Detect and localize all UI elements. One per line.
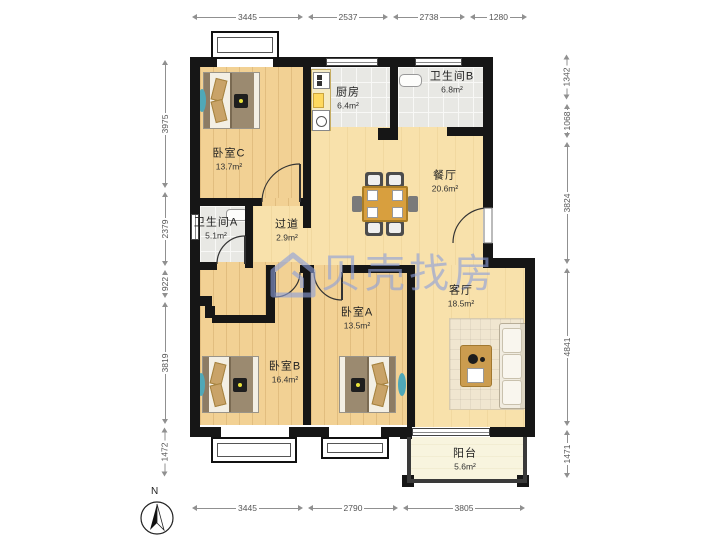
cup-icon (480, 357, 485, 362)
room-label-bedroom-a: 卧室A13.5m² (341, 304, 373, 331)
room-label-dining: 餐厅20.6m² (432, 167, 458, 194)
dimension-right-4: 4841 (562, 268, 572, 426)
bed-tray (234, 94, 248, 108)
bed-bedroom-b (202, 356, 259, 413)
dimension-top-2: 2537 (308, 12, 388, 22)
wall-bathroom-a-bottom (190, 262, 217, 270)
room-label-bedroom-b: 卧室B16.4m² (269, 358, 301, 385)
dining-chair (365, 220, 383, 236)
window-kitchen (326, 58, 378, 66)
floorplan-canvas: 贝壳找房 卧室C13.7m² 厨房6.4m² 卫生间B6.8m² 餐厅20.6m… (0, 0, 720, 540)
dimension-left-1: 3975 (160, 60, 170, 188)
balcony-rail-bottom (407, 479, 527, 483)
wall-right-lower (525, 258, 535, 437)
sofa (499, 323, 527, 409)
coffee-table (460, 345, 492, 387)
bed-tray (351, 378, 365, 392)
dimension-left-3: 922 (160, 270, 170, 298)
room-label-bathroom-a: 卫生间A5.1m² (194, 214, 238, 241)
bed-pillow (372, 383, 389, 407)
wall-bathroom-b-bottom (447, 127, 493, 136)
bathtub-bathroom-b (399, 74, 422, 87)
kettle-icon (468, 354, 478, 364)
dining-table (362, 186, 408, 222)
window-living-balcony (412, 428, 490, 436)
wall-kitchen-bathroom-b (390, 57, 398, 128)
bed-headboard (389, 357, 395, 412)
dimension-top-4: 1280 (470, 12, 527, 22)
balcony-rail-right (523, 437, 527, 483)
dimension-top-3: 2738 (393, 12, 465, 22)
dimension-right-5: 1471 (562, 430, 572, 478)
stove-icon (313, 72, 330, 89)
dining-bench (408, 196, 418, 212)
room-label-kitchen: 厨房6.4m² (336, 84, 360, 111)
dimension-bottom-3: 3805 (403, 503, 525, 513)
wall-left (190, 57, 200, 437)
watermark-logo-icon (268, 250, 318, 300)
wall-kitchen-stub (378, 128, 398, 140)
bed-tray (233, 378, 247, 392)
wall-bedroom-c-bottom (300, 198, 311, 206)
tray-icon (467, 368, 484, 383)
room-label-living: 客厅18.5m² (448, 282, 474, 309)
room-label-bathroom-b: 卫生间B6.8m² (430, 68, 474, 95)
bay-window-bedroom-a (321, 437, 389, 459)
compass-icon (141, 502, 173, 534)
balcony-rail-left (407, 437, 411, 483)
bed-bedroom-a (339, 356, 396, 413)
room-label-corridor: 过道2.9m² (275, 216, 299, 243)
room-label-bedroom-c: 卧室C13.7m² (213, 145, 246, 172)
room-label-balcony: 阳台5.6m² (453, 445, 477, 472)
bay-window-bedroom-b (211, 437, 297, 463)
bedside-rug-bedroom-a (398, 373, 406, 396)
dimension-left-5: 1472 (160, 428, 170, 477)
counter-item-icon (313, 93, 324, 108)
bed-pillow (210, 383, 227, 407)
kitchen-counter (311, 69, 331, 131)
wall-bottom-right (490, 427, 535, 437)
wall-bedroom-b-step (212, 315, 268, 323)
dimension-right-2: 1068 (562, 104, 572, 138)
dimension-right-1: 1342 (562, 55, 572, 100)
window-bathroom-b (415, 58, 462, 66)
bed-bedroom-c (203, 72, 260, 129)
dimension-right-3: 3824 (562, 142, 572, 264)
sink-icon (312, 110, 330, 131)
door-threshold-bedroom-c (262, 198, 300, 206)
wall-bathroom-a-right (245, 198, 253, 268)
compass-north-label: N (151, 486, 158, 497)
dimension-bottom-2: 2790 (308, 503, 398, 513)
bed-pillow (211, 99, 228, 123)
dining-chair (386, 220, 404, 236)
wall-bedroom-b-step (190, 296, 212, 306)
bay-opening-bedroom-a (329, 427, 381, 437)
dimension-left-2: 2379 (160, 192, 170, 266)
dining-bench (352, 196, 362, 212)
dimension-bottom-1: 3445 (192, 503, 303, 513)
dimension-left-4: 3819 (160, 302, 170, 424)
bed-pillow (372, 362, 389, 386)
bay-opening-bedroom-b (221, 427, 289, 437)
bay-window-bedroom-c (211, 31, 279, 59)
dimension-top-1: 3445 (192, 12, 303, 22)
